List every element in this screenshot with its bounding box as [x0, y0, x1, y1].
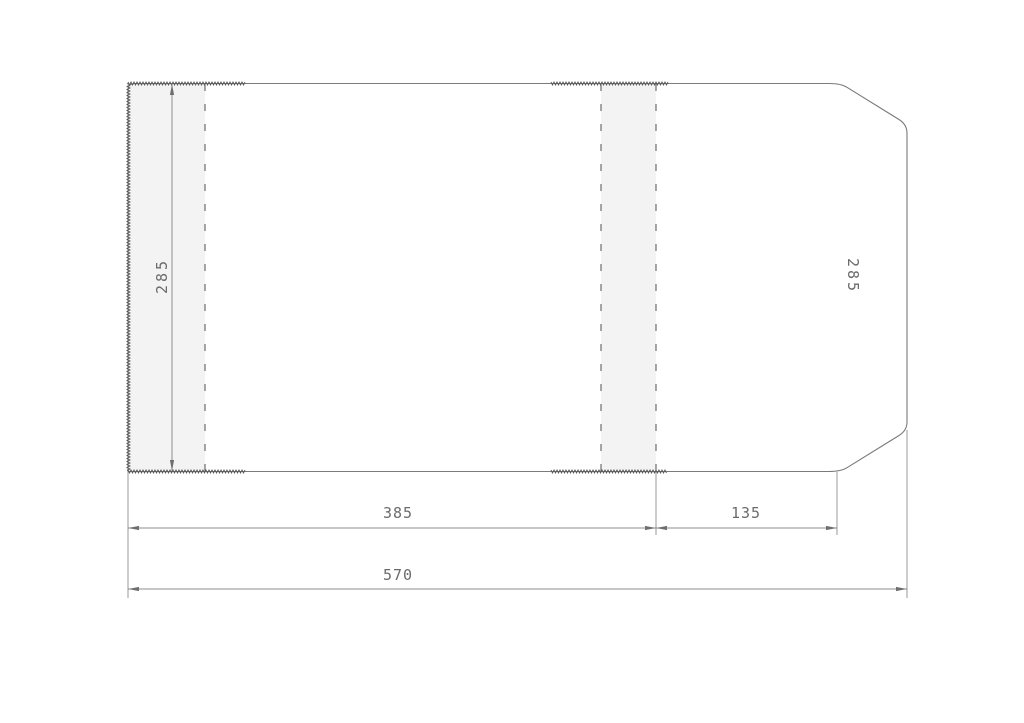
dim-label-height-right: 285: [845, 236, 861, 316]
dimension-arrow: [645, 526, 656, 530]
dim-label-height-left: 285: [154, 236, 170, 316]
fold-zone-spine: [601, 84, 656, 472]
dim-label-width-flap: 135: [706, 505, 786, 521]
dimension-arrow: [128, 526, 139, 530]
technical-drawing-page: 285 285 385 135 570: [0, 0, 1024, 723]
dimension-arrow: [896, 587, 907, 591]
dim-label-width-main: 385: [358, 505, 438, 521]
dim-label-width-total: 570: [358, 567, 438, 583]
dimension-arrow: [128, 587, 139, 591]
cover-outline: [128, 84, 907, 472]
cad-drawing-canvas: [0, 0, 1024, 723]
dimension-arrow: [826, 526, 837, 530]
dimension-arrow: [656, 526, 667, 530]
